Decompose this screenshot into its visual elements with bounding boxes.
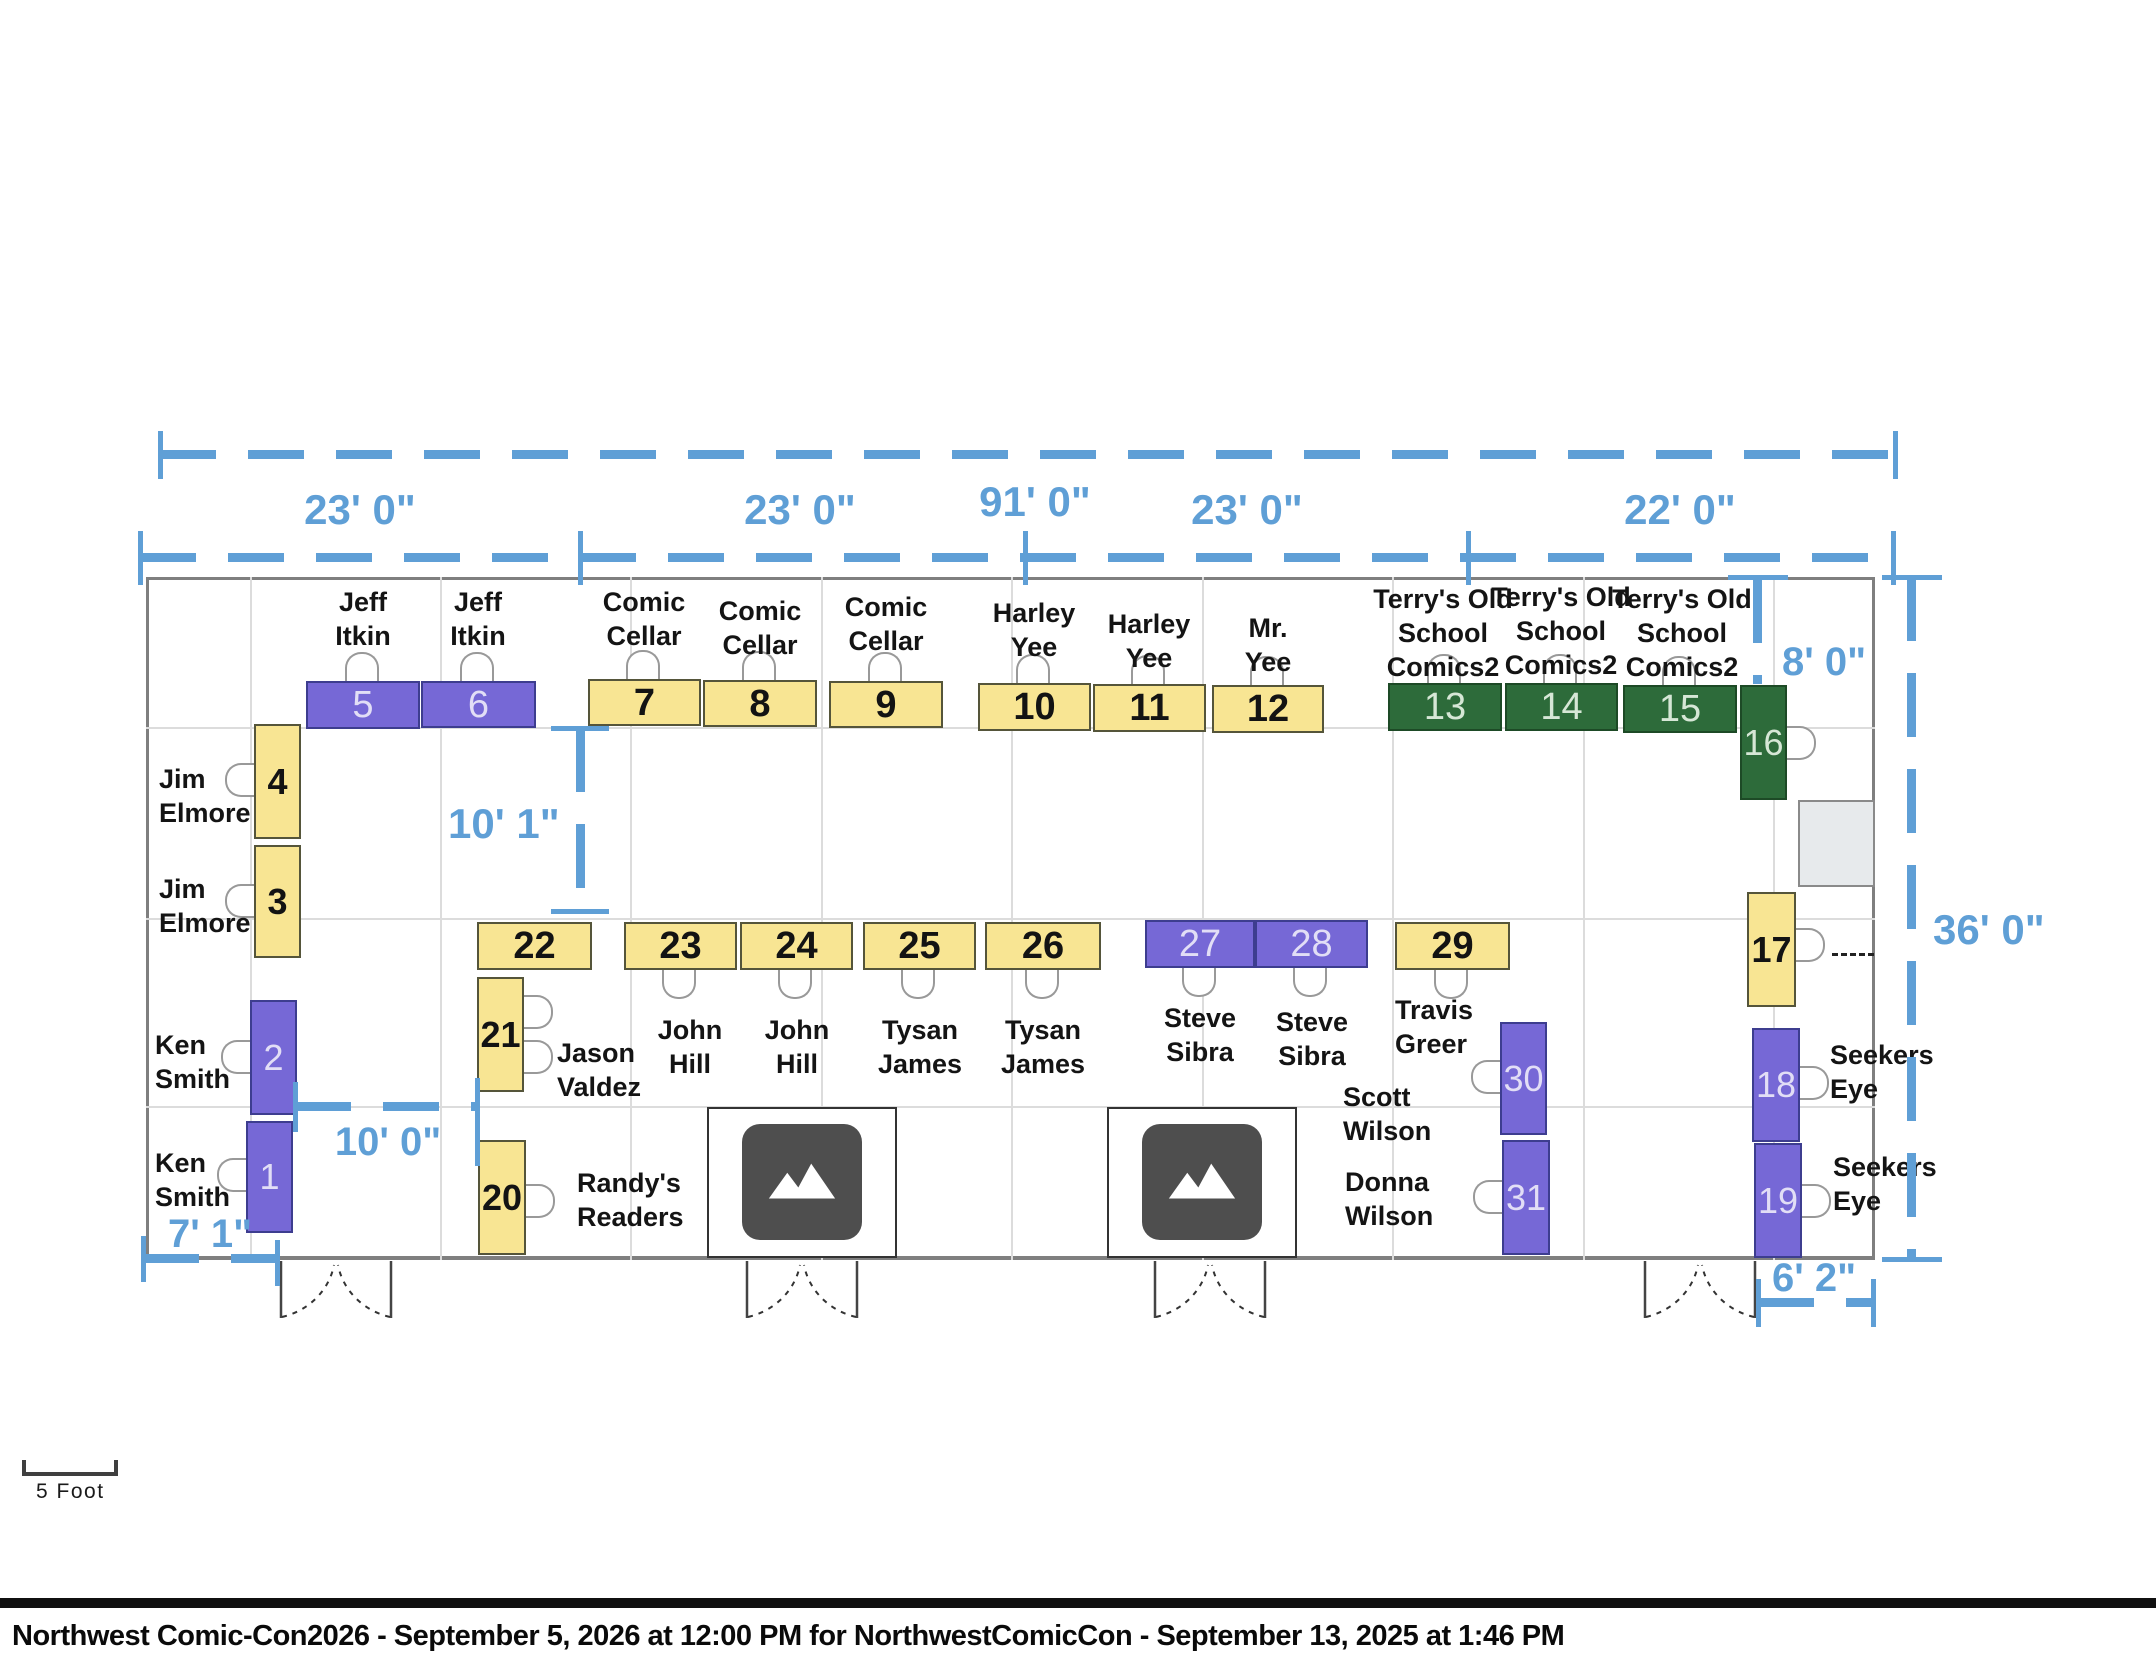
chair-icon xyxy=(345,652,379,681)
vendor-label-booth-8: Comic Cellar xyxy=(710,594,810,662)
booth-20[interactable]: 20 xyxy=(478,1140,526,1255)
booth-number: 7 xyxy=(634,684,655,722)
chair-icon xyxy=(1787,726,1816,760)
image-placeholder xyxy=(707,1107,897,1258)
dimension-tick xyxy=(1871,1279,1876,1327)
booth-number: 6 xyxy=(468,686,489,724)
booth-1[interactable]: 1 xyxy=(246,1121,293,1233)
dimension-tick xyxy=(578,531,583,585)
dimension-label-segment-4: 22' 0" xyxy=(1624,486,1736,534)
chair-icon xyxy=(526,1184,555,1218)
booth-8[interactable]: 8 xyxy=(703,680,817,727)
booth-number: 28 xyxy=(1290,925,1332,963)
pillar xyxy=(1798,800,1875,887)
booth-number: 5 xyxy=(352,686,373,724)
vendor-label-booth-25: Tysan James xyxy=(875,1013,965,1081)
booth-11[interactable]: 11 xyxy=(1093,684,1206,732)
dimension-label-7ft1: 7' 1" xyxy=(168,1212,252,1257)
booth-5[interactable]: 5 xyxy=(306,681,420,729)
dimension-label-6ft2: 6' 2" xyxy=(1772,1256,1856,1301)
dimension-label-8ft: 8' 0" xyxy=(1782,640,1866,685)
booth-number: 23 xyxy=(659,927,701,965)
booth-number: 3 xyxy=(267,884,287,920)
chair-icon xyxy=(1800,1066,1829,1100)
chair-icon xyxy=(1471,1060,1500,1094)
booth-number: 12 xyxy=(1247,690,1289,728)
vendor-label-booth-3: Jim Elmore xyxy=(159,872,259,940)
dimension-tick xyxy=(275,1240,280,1286)
booth-31[interactable]: 31 xyxy=(1502,1140,1550,1255)
vendor-label-booth-9: Comic Cellar xyxy=(836,590,936,658)
booth-30[interactable]: 30 xyxy=(1500,1022,1547,1135)
vendor-label-booth-28: Steve Sibra xyxy=(1267,1005,1357,1073)
chair-icon xyxy=(1293,968,1327,997)
booth-number: 9 xyxy=(875,686,896,724)
vendor-label-booth-27: Steve Sibra xyxy=(1155,1001,1245,1069)
booth-3[interactable]: 3 xyxy=(254,845,301,958)
dimension-tick xyxy=(1882,575,1942,580)
vendor-label-booth-18: Seekers Eye xyxy=(1830,1038,1950,1106)
booth-number: 11 xyxy=(1129,689,1169,727)
dimension-tick xyxy=(1756,1279,1761,1327)
booth-number: 18 xyxy=(1756,1067,1796,1103)
double-door-icon xyxy=(278,1261,394,1323)
booth-4[interactable]: 4 xyxy=(254,724,301,839)
chair-icon xyxy=(1025,970,1059,999)
vendor-label-booth-12: Mr. Yee xyxy=(1238,611,1298,679)
booth-12[interactable]: 12 xyxy=(1212,685,1324,733)
chair-icon xyxy=(1182,968,1216,997)
vendor-label-booth-26: Tysan James xyxy=(998,1013,1088,1081)
booth-number: 2 xyxy=(263,1040,283,1076)
chair-icon xyxy=(626,650,660,679)
vendor-label-booth-11: Harley Yee xyxy=(1099,607,1199,675)
booth-number: 4 xyxy=(267,764,287,800)
booth-18[interactable]: 18 xyxy=(1752,1028,1800,1142)
dimension-tick xyxy=(475,1078,480,1166)
vendor-label-booth-24: John Hill xyxy=(757,1013,837,1081)
vendor-label-booth-2: Ken Smith xyxy=(155,1028,245,1096)
booth-number: 13 xyxy=(1424,688,1466,726)
vendor-label-booth-15: Terry's Old School Comics2 xyxy=(1607,582,1757,684)
vendor-label-booth-5: Jeff Itkin xyxy=(308,585,418,653)
dimension-tick xyxy=(1023,531,1028,585)
booth-number: 31 xyxy=(1506,1180,1546,1216)
chair-icon xyxy=(524,995,553,1029)
vendor-label-booth-29: Travis Greer xyxy=(1395,993,1495,1061)
image-icon xyxy=(742,1124,862,1240)
floor-plan-canvas: 91' 0" 23' 0" 23' 0" 23' 0" 22' 0" 8' 0"… xyxy=(0,0,2156,1675)
double-door-icon xyxy=(744,1261,860,1323)
dimension-label-10ft1: 10' 1" xyxy=(448,800,560,848)
booth-24[interactable]: 24 xyxy=(740,922,853,970)
booth-number: 20 xyxy=(482,1180,522,1216)
booth-number: 21 xyxy=(480,1017,520,1053)
dimension-tick xyxy=(1728,575,1788,580)
vendor-label-booth-21: Jason Valdez xyxy=(557,1036,657,1104)
booth-number: 1 xyxy=(259,1159,279,1195)
booth-15[interactable]: 15 xyxy=(1623,685,1737,733)
dimension-line-10ft0 xyxy=(295,1102,478,1111)
dimension-tick xyxy=(138,531,143,585)
booth-number: 16 xyxy=(1743,725,1783,761)
booth-number: 14 xyxy=(1540,688,1582,726)
chair-icon xyxy=(1473,1180,1502,1214)
booth-10[interactable]: 10 xyxy=(978,683,1091,731)
booth-19[interactable]: 19 xyxy=(1754,1143,1802,1258)
booth-2[interactable]: 2 xyxy=(250,1000,297,1115)
dimension-line-segments xyxy=(140,553,1893,562)
booth-17-connector-dashes xyxy=(1832,953,1874,956)
booth-28[interactable]: 28 xyxy=(1255,920,1368,968)
booth-9[interactable]: 9 xyxy=(829,681,943,728)
booth-number: 24 xyxy=(775,927,817,965)
vendor-label-booth-4: Jim Elmore xyxy=(159,762,259,830)
booth-23[interactable]: 23 xyxy=(624,922,737,970)
vendor-label-booth-30: Scott Wilson xyxy=(1343,1080,1443,1148)
vendor-label-booth-20: Randy's Readers xyxy=(577,1166,692,1234)
dimension-tick xyxy=(293,1082,298,1132)
dimension-line-total xyxy=(160,450,1898,459)
dimension-tick xyxy=(1893,431,1898,479)
dimension-label-segment-2: 23' 0" xyxy=(744,486,856,534)
dimension-label-total-width: 91' 0" xyxy=(979,478,1091,526)
chair-icon xyxy=(1796,928,1825,962)
vendor-label-booth-10: Harley Yee xyxy=(984,596,1084,664)
booth-7[interactable]: 7 xyxy=(588,679,701,726)
image-icon xyxy=(1142,1124,1262,1240)
booth-17[interactable]: 17 xyxy=(1747,892,1796,1007)
double-door-icon xyxy=(1152,1261,1268,1323)
chair-icon xyxy=(662,970,696,999)
booth-13[interactable]: 13 xyxy=(1388,683,1502,731)
double-door-icon xyxy=(1642,1261,1758,1323)
vendor-label-booth-23: John Hill xyxy=(650,1013,730,1081)
booth-21[interactable]: 21 xyxy=(477,977,524,1092)
page-title: Northwest Comic-Con2026 - September 5, 2… xyxy=(12,1620,1564,1653)
grid-line xyxy=(146,918,1875,920)
booth-number: 22 xyxy=(513,927,555,965)
dimension-tick xyxy=(158,431,163,479)
booth-25[interactable]: 25 xyxy=(863,922,976,970)
dimension-line-8ft xyxy=(1753,579,1762,684)
booth-26[interactable]: 26 xyxy=(985,922,1101,970)
dimension-tick xyxy=(1466,531,1471,585)
chair-icon xyxy=(460,652,494,681)
booth-number: 8 xyxy=(749,685,770,723)
scale-bar xyxy=(22,1460,118,1476)
dimension-label-36ft: 36' 0" xyxy=(1933,906,2045,954)
booth-29[interactable]: 29 xyxy=(1395,922,1510,970)
vendor-label-booth-7: Comic Cellar xyxy=(594,585,694,653)
dimension-line-36ft xyxy=(1907,577,1916,1260)
booth-16[interactable]: 16 xyxy=(1740,685,1787,800)
title-divider xyxy=(0,1598,2156,1608)
booth-number: 19 xyxy=(1758,1183,1798,1219)
vendor-label-booth-19: Seekers Eye xyxy=(1833,1150,1953,1218)
booth-number: 25 xyxy=(898,927,940,965)
chair-icon xyxy=(1802,1184,1831,1218)
vendor-label-booth-1: Ken Smith xyxy=(155,1146,245,1214)
booth-number: 17 xyxy=(1751,932,1791,968)
vendor-label-booth-31: Donna Wilson xyxy=(1345,1165,1445,1233)
scale-label: 5 Foot xyxy=(36,1480,105,1504)
booth-number: 10 xyxy=(1013,688,1055,726)
booth-22[interactable]: 22 xyxy=(477,922,592,970)
booth-number: 26 xyxy=(1022,927,1064,965)
dimension-tick xyxy=(551,726,609,731)
image-placeholder xyxy=(1107,1107,1297,1258)
booth-number: 15 xyxy=(1659,690,1701,728)
booth-6[interactable]: 6 xyxy=(421,681,536,728)
dimension-tick xyxy=(141,1236,146,1282)
vendor-label-booth-6: Jeff Itkin xyxy=(423,585,533,653)
booth-27[interactable]: 27 xyxy=(1145,920,1255,968)
booth-14[interactable]: 14 xyxy=(1505,683,1618,731)
dimension-label-10ft0: 10' 0" xyxy=(335,1120,441,1165)
dimension-tick xyxy=(1882,1257,1942,1262)
booth-number: 27 xyxy=(1179,925,1221,963)
dimension-tick xyxy=(551,909,609,914)
dimension-label-segment-3: 23' 0" xyxy=(1191,486,1303,534)
booth-number: 30 xyxy=(1503,1061,1543,1097)
chair-icon xyxy=(778,970,812,999)
dimension-label-segment-1: 23' 0" xyxy=(304,486,416,534)
chair-icon xyxy=(901,970,935,999)
booth-number: 29 xyxy=(1431,927,1473,965)
chair-icon xyxy=(524,1040,553,1074)
dimension-line-10ft1 xyxy=(576,728,585,913)
